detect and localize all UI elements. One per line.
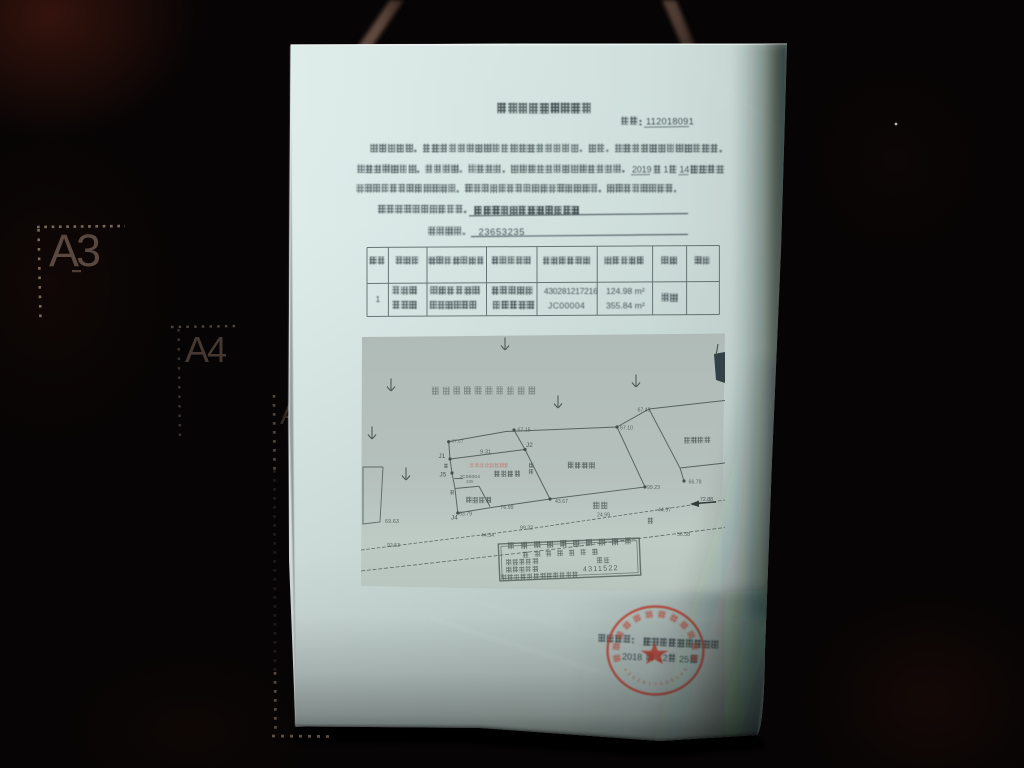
svg-text:44.34: 44.34 — [481, 533, 494, 539]
svg-text:JC00004: JC00004 — [548, 300, 585, 310]
svg-text:1: 1 — [664, 165, 669, 175]
svg-text:9.31: 9.31 — [480, 450, 491, 456]
svg-text:J5: J5 — [440, 472, 447, 479]
svg-text:J1: J1 — [439, 453, 446, 460]
svg-text:92.53: 92.53 — [387, 543, 400, 549]
svg-text:285: 285 — [466, 479, 474, 484]
svg-text:67.15: 67.15 — [518, 428, 531, 434]
svg-text:2019: 2019 — [632, 165, 652, 175]
svg-text:14: 14 — [680, 165, 690, 175]
svg-text:1: 1 — [376, 294, 381, 304]
svg-text:A3: A3 — [49, 225, 100, 276]
svg-text:93.79: 93.79 — [459, 512, 472, 518]
svg-text:J4: J4 — [451, 515, 458, 522]
svg-text:355.84 m²: 355.84 m² — [606, 300, 645, 310]
svg-text:430281217216: 430281217216 — [544, 286, 598, 296]
svg-text:76.99: 76.99 — [501, 505, 514, 511]
svg-text:A4: A4 — [185, 329, 226, 370]
svg-text:23653235: 23653235 — [479, 226, 526, 237]
svg-text:99.22: 99.22 — [520, 526, 533, 532]
svg-text:69.63: 69.63 — [385, 519, 399, 525]
svg-text:124.98 m²: 124.98 m² — [606, 286, 645, 296]
svg-text:112018091: 112018091 — [646, 117, 694, 127]
svg-text:43.67: 43.67 — [555, 499, 568, 505]
svg-text:67.57: 67.57 — [452, 439, 464, 445]
svg-text:J2: J2 — [526, 442, 533, 449]
